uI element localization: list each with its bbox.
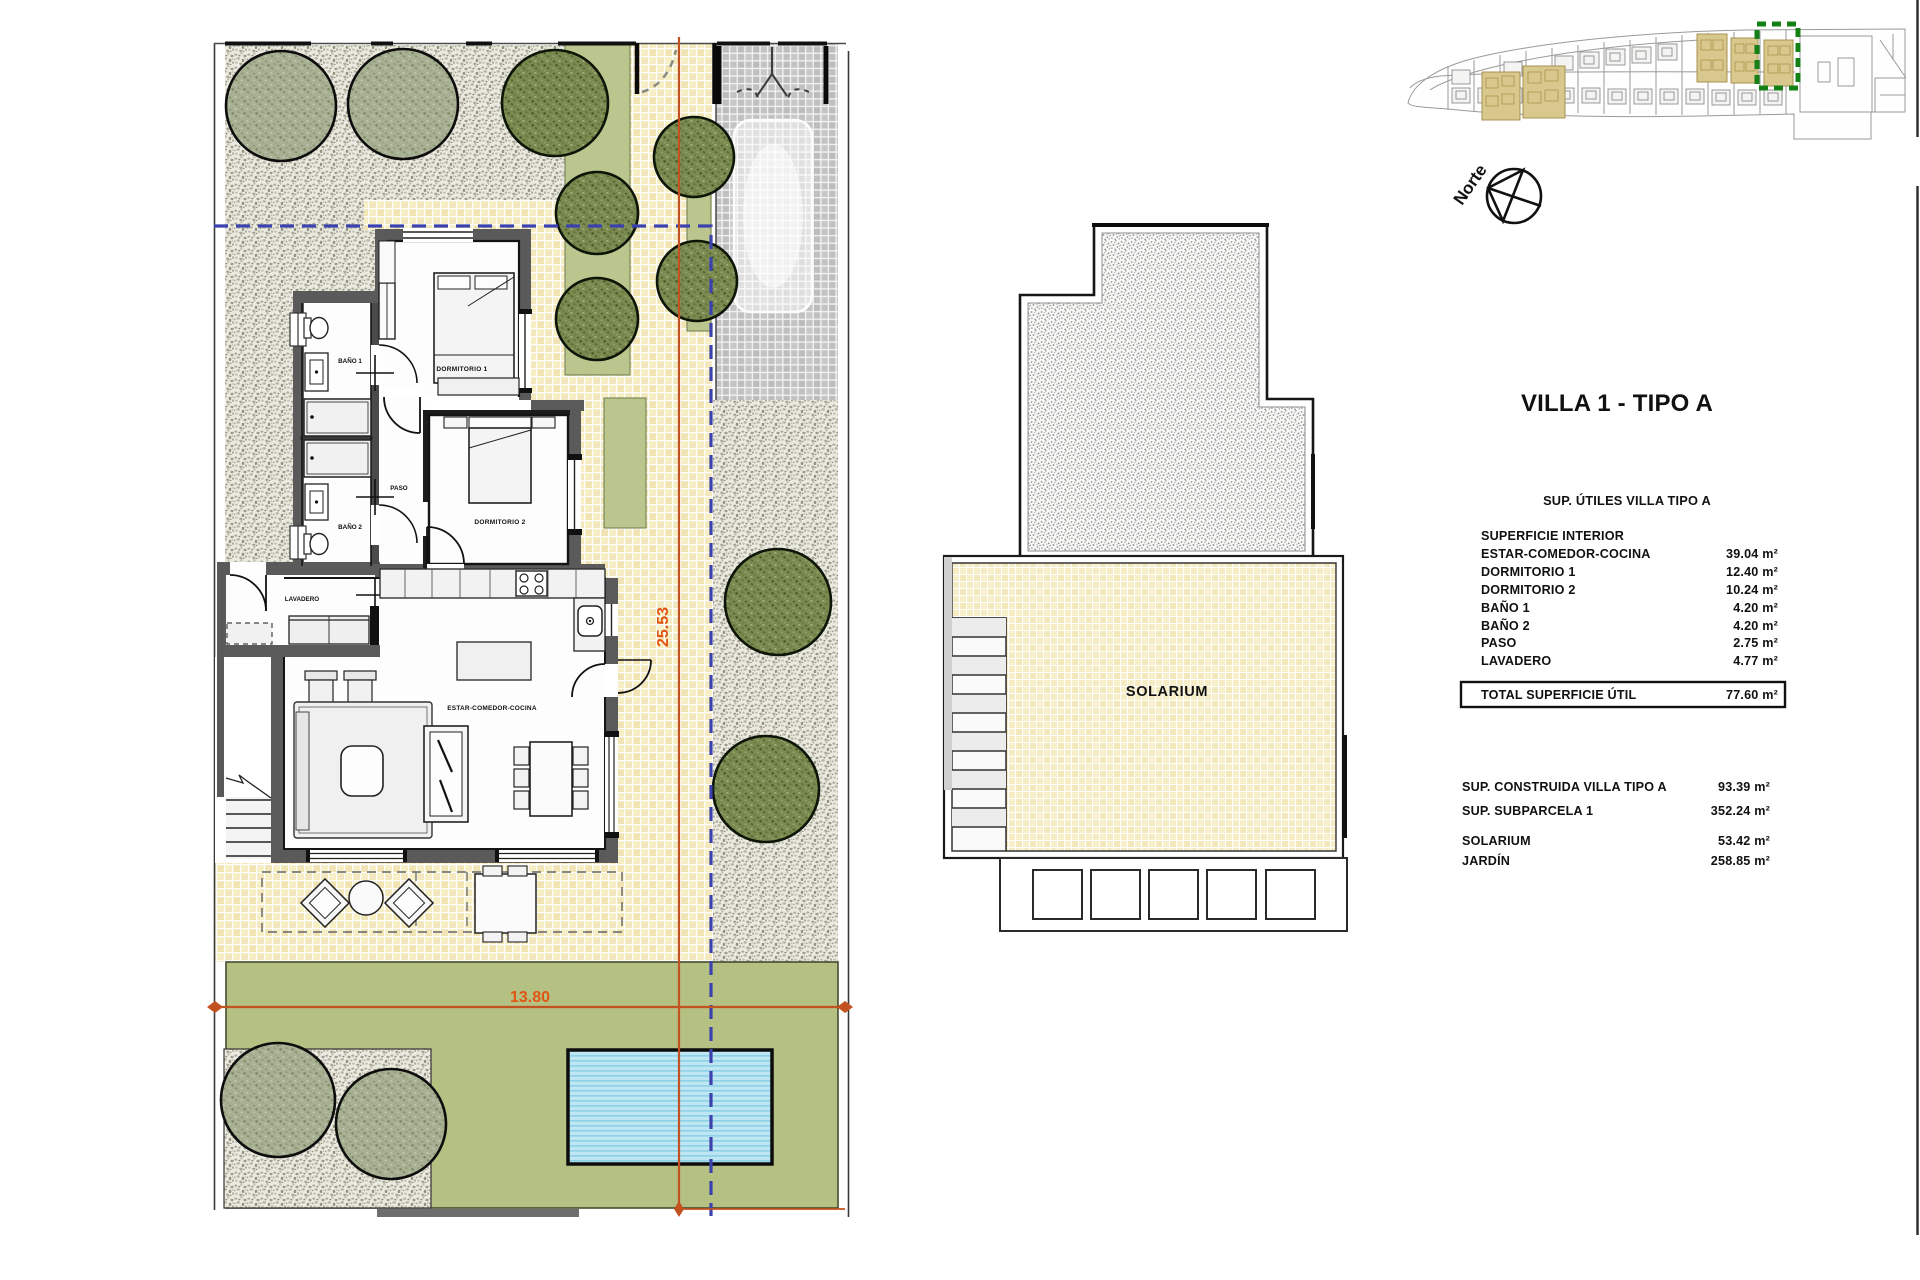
svg-text:PASO: PASO [390,485,407,492]
svg-text:SOLARIUM: SOLARIUM [1126,684,1208,700]
svg-text:DORMITORIO 1: DORMITORIO 1 [1481,565,1576,579]
svg-text:25.53: 25.53 [655,607,672,647]
svg-text:VILLA 1 - TIPO A: VILLA 1 - TIPO A [1521,390,1713,417]
svg-text:SOLARIUM: SOLARIUM [1462,834,1531,848]
svg-text:BAÑO 2: BAÑO 2 [1481,618,1530,633]
svg-text:4.20 m²: 4.20 m² [1733,601,1778,615]
svg-text:DORMITORIO 1: DORMITORIO 1 [436,366,487,373]
svg-text:77.60 m²: 77.60 m² [1726,688,1778,702]
svg-text:352.24 m²: 352.24 m² [1711,804,1770,818]
svg-text:SUP. SUBPARCELA 1: SUP. SUBPARCELA 1 [1462,804,1593,818]
svg-text:2.75 m²: 2.75 m² [1733,636,1778,650]
svg-text:DORMITORIO 2: DORMITORIO 2 [1481,583,1576,597]
svg-text:BAÑO 1: BAÑO 1 [1481,600,1530,615]
svg-text:LAVADERO: LAVADERO [1481,654,1551,668]
svg-text:SUPERFICIE INTERIOR: SUPERFICIE INTERIOR [1481,529,1624,543]
svg-text:12.40 m²: 12.40 m² [1726,565,1778,579]
svg-text:4.77 m²: 4.77 m² [1733,654,1778,668]
svg-text:SUP. ÚTILES VILLA TIPO A: SUP. ÚTILES VILLA TIPO A [1543,493,1711,508]
svg-text:TOTAL SUPERFICIE ÚTIL: TOTAL SUPERFICIE ÚTIL [1481,687,1636,702]
svg-text:53.42 m²: 53.42 m² [1718,834,1770,848]
svg-text:BAÑO 1: BAÑO 1 [338,356,362,365]
svg-text:BAÑO 2: BAÑO 2 [338,522,362,531]
svg-text:13.80: 13.80 [510,989,550,1006]
svg-text:39.04 m²: 39.04 m² [1726,547,1778,561]
svg-text:ESTAR-COMEDOR-COCINA: ESTAR-COMEDOR-COCINA [1481,547,1651,561]
svg-text:SUP. CONSTRUIDA VILLA TIPO A: SUP. CONSTRUIDA VILLA TIPO A [1462,780,1667,794]
svg-text:Norte: Norte [1450,161,1491,208]
svg-text:LAVADERO: LAVADERO [285,596,320,603]
svg-text:JARDÍN: JARDÍN [1462,853,1510,868]
svg-text:10.24 m²: 10.24 m² [1726,583,1778,597]
svg-text:PASO: PASO [1481,636,1517,650]
svg-text:ESTAR-COMEDOR-COCINA: ESTAR-COMEDOR-COCINA [447,705,537,712]
svg-text:DORMITORIO 2: DORMITORIO 2 [474,519,525,526]
svg-text:4.20 m²: 4.20 m² [1733,619,1778,633]
svg-text:93.39 m²: 93.39 m² [1718,780,1770,794]
svg-text:258.85 m²: 258.85 m² [1711,854,1770,868]
